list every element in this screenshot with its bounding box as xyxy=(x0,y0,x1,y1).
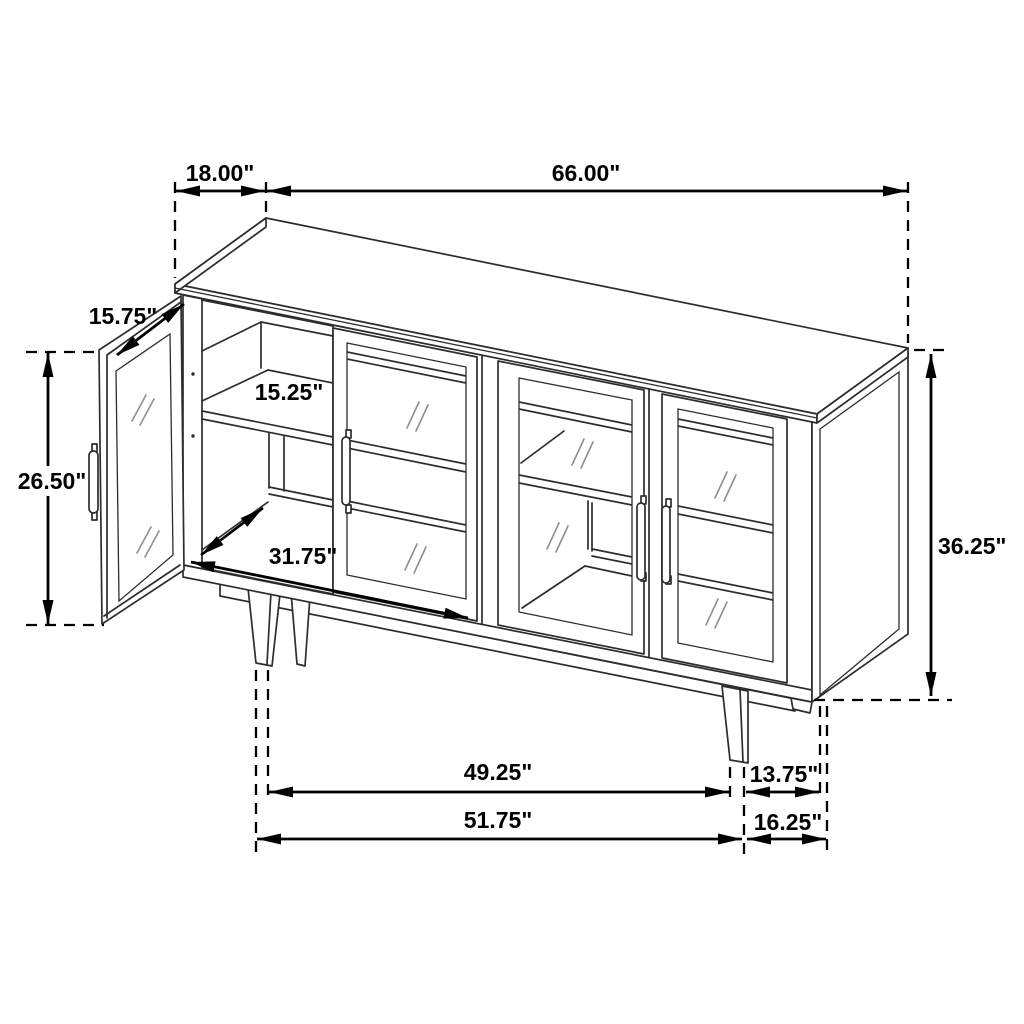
glass-door-3 xyxy=(498,361,646,654)
dimension-door-height: 26.50" xyxy=(18,353,86,624)
dim-label-interior-depth: 15.25" xyxy=(255,379,323,405)
dimension-overall-height: 36.25" xyxy=(926,354,1007,696)
dim-label-side-depth-lower: 16.25" xyxy=(754,809,822,835)
cabinet-dimension-diagram: 18.00" 66.00" 15.75" 26.50" xyxy=(0,0,1024,1024)
dimension-drawing-canvas: 18.00" 66.00" 15.75" 26.50" xyxy=(0,0,1024,1024)
dim-label-outer-leg-span: 51.75" xyxy=(464,807,532,833)
dimension-outer-leg-span: 51.75" xyxy=(257,807,742,845)
dimension-top-width: 66.00" xyxy=(267,160,907,197)
front-left-leg xyxy=(248,588,280,666)
shelf-pin-hole xyxy=(191,372,194,375)
dim-label-top-depth: 18.00" xyxy=(186,160,254,186)
dim-label-door-width: 15.75" xyxy=(89,303,157,329)
door-4-handle xyxy=(662,499,671,584)
back-left-leg xyxy=(291,592,310,666)
shelf-pin-hole xyxy=(191,434,194,437)
door-2-handle xyxy=(342,430,351,513)
dimension-top-depth: 18.00" xyxy=(176,160,265,197)
door-3-handle xyxy=(637,496,646,581)
dimension-side-depth-upper: 13.75" xyxy=(746,761,819,798)
dimension-side-depth-lower: 16.25" xyxy=(747,809,826,845)
dim-label-door-height: 26.50" xyxy=(18,468,86,494)
dim-label-overall-height: 36.25" xyxy=(938,533,1006,559)
cabinet-line-drawing xyxy=(89,218,908,763)
dim-label-inner-leg-span: 49.25" xyxy=(464,759,532,785)
dimension-inner-leg-span: 49.25" xyxy=(269,759,729,798)
door-1-handle xyxy=(89,444,98,520)
dim-label-top-width: 66.00" xyxy=(552,160,620,186)
front-right-leg xyxy=(722,686,748,763)
dim-label-side-depth-upper: 13.75" xyxy=(750,761,818,787)
glass-door-2 xyxy=(333,328,477,621)
dim-label-interior-width: 31.75" xyxy=(269,543,337,569)
glass-door-4 xyxy=(662,394,787,683)
